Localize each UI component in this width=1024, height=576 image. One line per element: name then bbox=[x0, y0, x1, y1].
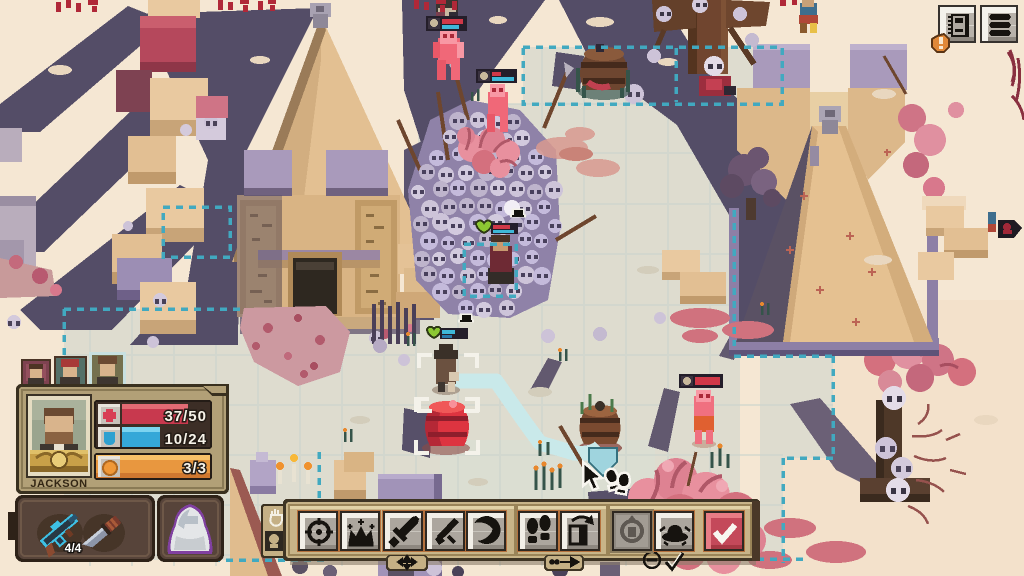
svg-text:3/3: 3/3 bbox=[183, 460, 207, 477]
svg-text:10/24: 10/24 bbox=[164, 431, 207, 448]
svg-text:JACKSON: JACKSON bbox=[30, 478, 87, 490]
svg-text:37/50: 37/50 bbox=[164, 408, 207, 425]
svg-text:4/4: 4/4 bbox=[65, 541, 82, 555]
